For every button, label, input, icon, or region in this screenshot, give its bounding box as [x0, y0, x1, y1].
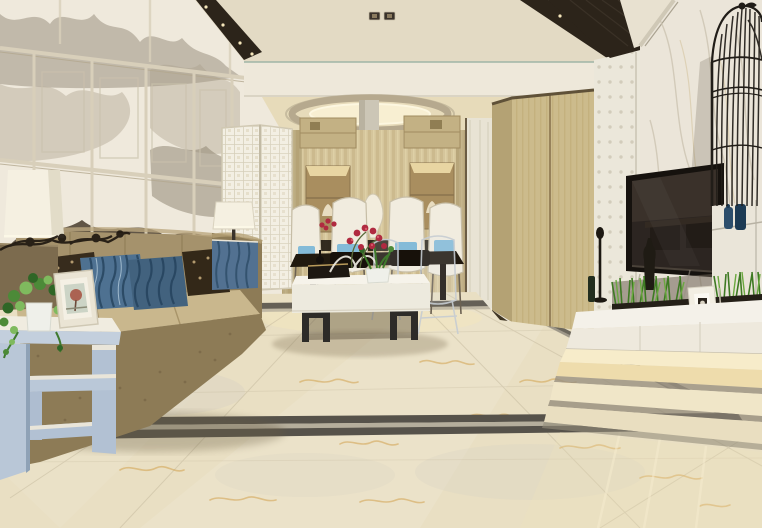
blue-side-cabinet [212, 240, 258, 290]
flat-screen-tv [626, 163, 724, 278]
ceiling-bulkhead [244, 62, 612, 97]
bottle-decor-left [588, 276, 595, 302]
blue-vases [724, 204, 746, 230]
mirror-strip [466, 118, 492, 308]
wardrobe-cabinet [492, 90, 594, 340]
striped-blue-pillow-2 [128, 256, 188, 310]
table-lamp-left [4, 170, 64, 238]
scene-canvas [0, 0, 762, 528]
photo-frame [54, 270, 98, 328]
interior-render [0, 0, 762, 528]
